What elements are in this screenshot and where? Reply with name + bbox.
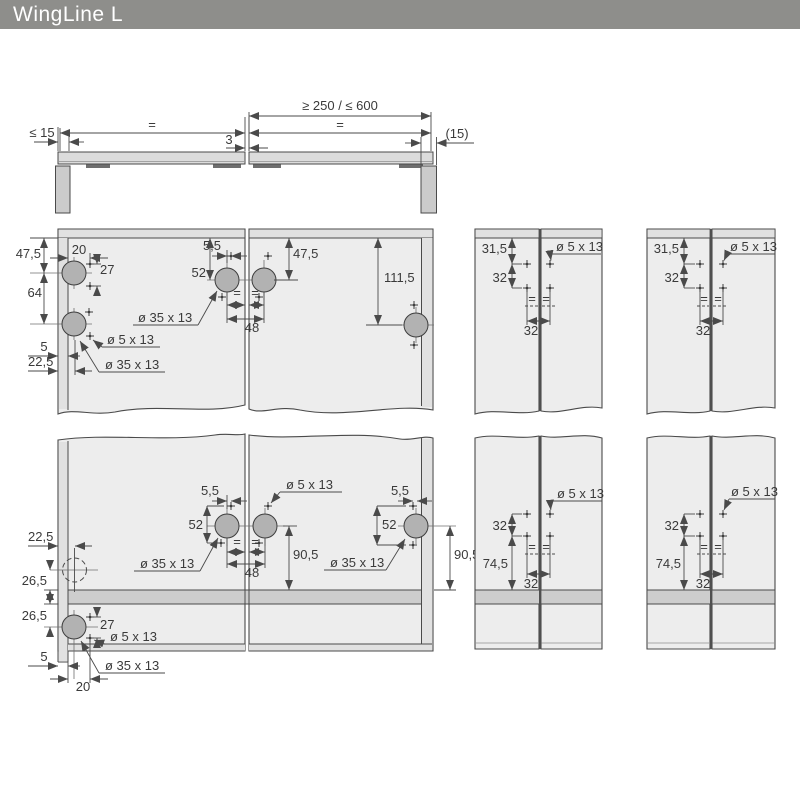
- svg-text:ø 35 x 13: ø 35 x 13: [138, 310, 192, 325]
- svg-text:=: =: [700, 291, 708, 306]
- svg-text:ø 35 x 13: ø 35 x 13: [330, 555, 384, 570]
- svg-text:=: =: [542, 539, 550, 554]
- dim-ul-cup-spacing: 64: [28, 273, 44, 324]
- svg-text:ø 5 x 13: ø 5 x 13: [730, 239, 777, 254]
- plan-door-right: [249, 152, 433, 164]
- dim-lr-shelf-offset: 90,5: [434, 526, 479, 590]
- panel: [475, 229, 539, 414]
- svg-text:47,5: 47,5: [293, 246, 318, 261]
- svg-text:26,5: 26,5: [22, 573, 47, 588]
- narrow-pair-2-top: 31,5 32 = = 32 ø 5 x 13: [647, 229, 777, 414]
- dim-side-clearance: ≤ 15: [29, 125, 84, 151]
- svg-text:48: 48: [245, 320, 259, 335]
- narrow-pair-1-top: 31,5 32 = = 32 ø 5 x 13: [475, 229, 603, 414]
- cup-drilling: [62, 615, 86, 639]
- svg-text:64: 64: [28, 285, 42, 300]
- equal-sign: =: [148, 117, 156, 132]
- svg-text:5,5: 5,5: [391, 483, 409, 498]
- svg-text:20: 20: [76, 679, 90, 694]
- svg-text:=: =: [528, 291, 536, 306]
- plan-view: ≥ 250 / ≤ 600 = = ≤ 15 3: [29, 98, 474, 213]
- upper-front-view: 47,5 64 20 27 5 22,5: [16, 229, 434, 414]
- svg-text:=: =: [528, 539, 536, 554]
- cup-drilling: [62, 312, 86, 336]
- svg-text:ø 35 x 13: ø 35 x 13: [105, 357, 159, 372]
- svg-text:27: 27: [100, 262, 114, 277]
- svg-text:=: =: [233, 534, 241, 549]
- plan-width-range-label: ≥ 250 / ≤ 600: [302, 98, 378, 113]
- panel-junction: [539, 229, 541, 411]
- svg-text:52: 52: [382, 517, 396, 532]
- svg-text:ø 35 x 13: ø 35 x 13: [105, 658, 159, 673]
- panel: [712, 229, 775, 412]
- svg-text:32: 32: [493, 518, 507, 533]
- door-gap-label: 3: [225, 132, 232, 147]
- svg-text:31,5: 31,5: [654, 241, 679, 256]
- svg-text:52: 52: [189, 517, 203, 532]
- svg-text:=: =: [251, 285, 259, 300]
- equal-sign: =: [336, 117, 344, 132]
- svg-text:32: 32: [696, 323, 710, 338]
- dim-equal-left: =: [60, 117, 245, 151]
- svg-text:90,5: 90,5: [293, 547, 318, 562]
- svg-text:ø 5 x 13: ø 5 x 13: [107, 332, 154, 347]
- svg-text:32: 32: [524, 323, 538, 338]
- svg-text:ø 5 x 13: ø 5 x 13: [556, 239, 603, 254]
- panel-junction: [539, 436, 541, 649]
- svg-text:22,5: 22,5: [28, 354, 53, 369]
- overlay-label: (15): [445, 126, 468, 141]
- svg-text:5,5: 5,5: [203, 238, 221, 253]
- dim-ul-top-offset: 47,5: [16, 238, 58, 273]
- cup-drilling: [62, 261, 86, 285]
- svg-text:ø 5 x 13: ø 5 x 13: [557, 486, 604, 501]
- svg-text:32: 32: [696, 576, 710, 591]
- svg-text:32: 32: [665, 270, 679, 285]
- dim-ll-below-shelf: 26,5: [22, 595, 58, 636]
- title-bar: WingLine L: [0, 0, 800, 29]
- narrow-pair-1-bottom: 32 74,5 = = 32 ø 5 x 13: [475, 436, 604, 649]
- svg-text:32: 32: [524, 576, 538, 591]
- svg-text:32: 32: [665, 518, 679, 533]
- svg-text:74,5: 74,5: [656, 556, 681, 571]
- svg-text:20: 20: [72, 242, 86, 257]
- svg-text:22,5: 22,5: [28, 529, 53, 544]
- svg-text:ø 5 x 13: ø 5 x 13: [110, 629, 157, 644]
- panel-junction: [710, 436, 712, 649]
- svg-text:74,5: 74,5: [483, 556, 508, 571]
- svg-text:ø 5 x 13: ø 5 x 13: [286, 477, 333, 492]
- panel: [647, 229, 710, 414]
- side-clearance-label: ≤ 15: [29, 125, 54, 140]
- svg-text:5: 5: [40, 339, 47, 354]
- cabinet-side-right: [421, 166, 437, 213]
- svg-text:ø 5 x 13: ø 5 x 13: [731, 484, 778, 499]
- svg-text:5: 5: [40, 649, 47, 664]
- svg-text:32: 32: [493, 270, 507, 285]
- svg-text:ø 35 x 13: ø 35 x 13: [140, 556, 194, 571]
- svg-text:31,5: 31,5: [482, 241, 507, 256]
- cabinet-side-left: [56, 166, 71, 213]
- svg-text:=: =: [542, 291, 550, 306]
- svg-text:47,5: 47,5: [16, 246, 41, 261]
- technical-drawing: ≥ 250 / ≤ 600 = = ≤ 15 3: [0, 29, 800, 800]
- door-panel: [249, 435, 433, 651]
- svg-text:=: =: [251, 534, 259, 549]
- svg-text:5,5: 5,5: [201, 483, 219, 498]
- page-title: WingLine L: [13, 3, 123, 27]
- shelf-section: [475, 590, 602, 604]
- panel-junction: [710, 229, 712, 411]
- dim-ll-above-shelf: 26,5: [22, 561, 58, 599]
- plan-hinge-marks: [86, 165, 423, 169]
- svg-text:48: 48: [245, 565, 259, 580]
- door-panel: [58, 434, 245, 651]
- dim-door-gap: 3: [225, 117, 268, 151]
- plan-door-left: [58, 152, 245, 164]
- svg-text:=: =: [714, 291, 722, 306]
- svg-text:111,5: 111,5: [384, 270, 415, 285]
- dim-equal-right: =: [249, 117, 431, 133]
- svg-text:=: =: [714, 539, 722, 554]
- cup-drilling: [404, 313, 428, 337]
- svg-text:=: =: [700, 539, 708, 554]
- svg-text:26,5: 26,5: [22, 608, 47, 623]
- svg-text:=: =: [233, 285, 241, 300]
- svg-text:52: 52: [192, 265, 206, 280]
- narrow-pair-2-bottom: 32 74,5 = = 32 ø 5 x 13: [647, 436, 778, 649]
- lower-front-view: 22,5 26,5 26,5 27 ø 5 x 13 ø: [22, 434, 480, 694]
- cup-drilling: [404, 514, 428, 538]
